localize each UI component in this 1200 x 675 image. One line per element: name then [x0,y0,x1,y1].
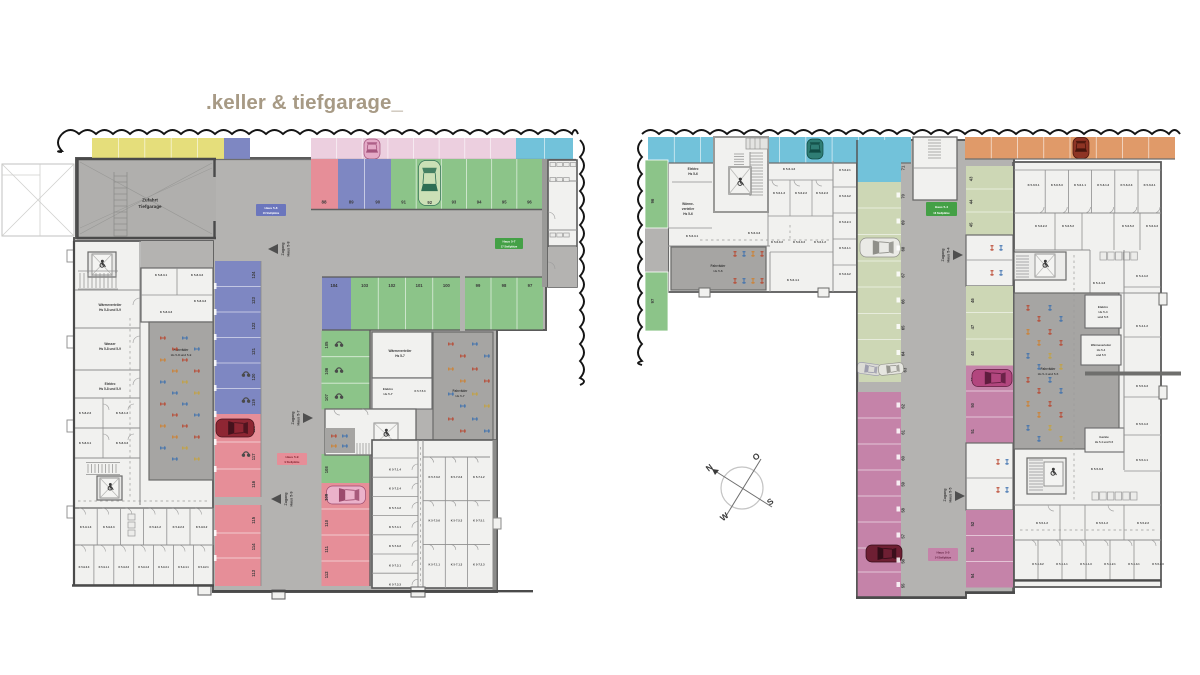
svg-text:Tiefgarage: Tiefgarage [138,204,162,209]
svg-text:K 5-7.2.3: K 5-7.2.3 [473,562,485,566]
svg-text:96: 96 [650,198,655,203]
svg-text:K 5-5.1.2: K 5-5.1.2 [1036,521,1048,525]
svg-text:Haus 5-9: Haus 5-9 [286,455,299,459]
svg-text:58: 58 [901,507,906,512]
svg-text:108: 108 [324,466,329,474]
svg-text:120: 120 [251,373,256,381]
svg-text:K 5-9.0.3: K 5-9.0.3 [79,565,90,569]
svg-text:K 5-6.2.2: K 5-6.2.2 [1035,224,1047,228]
svg-text:Haus 5-5: Haus 5-5 [949,488,953,503]
svg-text:Haus 5-4: Haus 5-4 [935,205,948,209]
svg-text:K 5-7.2.3: K 5-7.2.3 [451,475,463,479]
svg-text:K 5-5.2.2: K 5-5.2.2 [1137,521,1149,525]
svg-text:K 5-9.0.2: K 5-9.0.2 [196,525,208,529]
svg-text:K 5-9.2.2: K 5-9.2.2 [173,525,185,529]
svg-text:117: 117 [251,453,256,460]
svg-text:K 5-6.3.3: K 5-6.3.3 [748,231,761,235]
svg-text:K 5-6.2.1: K 5-6.2.1 [1144,183,1156,187]
svg-text:71: 71 [901,165,906,170]
svg-text:K 5-7.3.2: K 5-7.3.2 [389,544,401,548]
svg-text:K 5-8.0.2: K 5-8.0.2 [116,441,129,445]
svg-text:106: 106 [324,367,329,375]
svg-text:104: 104 [331,283,339,288]
svg-text:114: 114 [251,543,256,550]
svg-text:53: 53 [970,547,975,552]
svg-text:K 5-6.1.3: K 5-6.1.3 [1097,183,1109,187]
svg-text:K 5-6.2.2: K 5-6.2.2 [795,191,807,195]
svg-text:K 5-6.1.1: K 5-6.1.1 [839,246,851,250]
svg-text:Geräte: Geräte [1099,435,1109,439]
svg-text:Elektro: Elektro [688,167,699,171]
svg-text:Wärme-: Wärme- [682,202,694,206]
svg-text:K 5-6.5.3: K 5-6.5.3 [1051,183,1063,187]
svg-text:K 5-8.3.1: K 5-8.3.1 [155,273,168,277]
svg-text:91: 91 [401,200,406,205]
svg-text:K 5-7.2.4: K 5-7.2.4 [389,487,401,491]
svg-text:Zugang: Zugang [941,249,945,262]
svg-text:K 5-6.3.2: K 5-6.3.2 [839,272,851,276]
svg-text:K 5-7.3.3: K 5-7.3.3 [389,583,401,587]
svg-text:64: 64 [901,351,906,356]
svg-text:K 5-8.3.3: K 5-8.3.3 [160,310,173,314]
svg-text:K 5-7.4.2: K 5-7.4.2 [389,506,401,510]
svg-text:89: 89 [349,200,354,205]
svg-text:Fahrräder: Fahrräder [453,389,469,393]
svg-text:57: 57 [901,533,906,538]
svg-text:K 5-5.4.1: K 5-5.4.1 [1136,458,1148,462]
svg-text:48: 48 [970,351,975,356]
svg-text:K 5-6.0.2: K 5-6.0.2 [771,240,783,244]
svg-text:K 5-9.4.3: K 5-9.4.3 [138,565,149,569]
svg-text:17 Stellplätze: 17 Stellplätze [501,244,518,248]
svg-text:Haus 5-7: Haus 5-7 [503,240,516,244]
svg-text:96: 96 [527,200,532,205]
svg-text:98: 98 [502,283,507,288]
svg-text:K 5-5.4.3: K 5-5.4.3 [1136,422,1148,426]
svg-text:Hs 5-7: Hs 5-7 [383,392,392,396]
svg-text:112: 112 [324,571,329,578]
svg-text:K 5-6.2.4: K 5-6.2.4 [839,220,851,224]
svg-text:K 5-8.2.2: K 5-8.2.2 [79,411,92,415]
svg-text:50: 50 [970,402,975,407]
svg-text:K 5-6.1.3: K 5-6.1.3 [773,191,785,195]
svg-text:46: 46 [970,298,975,303]
svg-text:K 5-4.4.2: K 5-4.4.2 [1136,274,1148,278]
svg-text:verteiler: verteiler [682,207,695,211]
svg-text:54: 54 [970,573,975,578]
svg-text:K 5-6.1.2: K 5-6.1.2 [814,240,826,244]
svg-text:Haus 5-8: Haus 5-8 [265,206,278,210]
svg-text:119: 119 [251,399,256,406]
svg-text:14 Stellplätze: 14 Stellplätze [935,556,952,560]
svg-text:K 5-6.2.3: K 5-6.2.3 [1120,183,1132,187]
svg-text:K 5-4.1.2: K 5-4.1.2 [1136,324,1148,328]
svg-text:122: 122 [251,322,256,330]
svg-text:44: 44 [969,199,974,204]
svg-text:113: 113 [251,569,256,576]
svg-text:Zugang: Zugang [943,489,947,502]
svg-text:K 5-9.2.3: K 5-9.2.3 [103,525,115,529]
svg-text:K 5-9.3.1: K 5-9.3.1 [158,565,169,569]
svg-text:61: 61 [901,429,906,434]
svg-text:99: 99 [476,283,481,288]
svg-text:K 5-6.5.2: K 5-6.5.2 [1062,224,1074,228]
svg-text:102: 102 [388,283,396,288]
svg-text:und 5-5: und 5-5 [1096,353,1106,357]
svg-text:90: 90 [375,200,380,205]
svg-text:100: 100 [443,283,451,288]
svg-text:124: 124 [251,271,256,279]
svg-text:Fahrräder: Fahrräder [1041,367,1057,371]
svg-text:Hs 5-8 und 5-9: Hs 5-8 und 5-9 [99,347,121,351]
svg-text:K 5-5.0.3: K 5-5.0.3 [1091,467,1104,471]
svg-text:43: 43 [969,176,974,181]
svg-text:K 5-8.1.2: K 5-8.1.2 [116,411,129,415]
svg-text:88: 88 [321,200,327,205]
svg-text:16 Stellplätze: 16 Stellplätze [263,211,280,215]
svg-text:K 5-8.3.2: K 5-8.3.2 [191,273,204,277]
svg-text:69: 69 [901,220,906,225]
svg-text:9 Stellplätze: 9 Stellplätze [285,460,301,464]
svg-text:K 5-7.1.2: K 5-7.1.2 [473,475,485,479]
svg-text:105: 105 [324,341,329,349]
svg-text:51: 51 [970,428,975,433]
svg-text:16 Stellplätze: 16 Stellplätze [933,211,950,215]
svg-text:K 5-6.4.2: K 5-6.4.2 [783,167,796,171]
svg-text:68: 68 [901,246,906,251]
svg-text:52: 52 [970,521,975,526]
svg-text:97: 97 [528,283,533,288]
svg-text:Fahrräder: Fahrräder [711,264,727,268]
svg-text:103: 103 [361,283,369,288]
svg-text:K 5-8.3.3: K 5-8.3.3 [194,299,207,303]
svg-text:Haus 5-4: Haus 5-4 [947,248,951,263]
svg-text:Zugang: Zugang [281,243,285,256]
svg-text:Haus 5-9: Haus 5-9 [290,492,294,507]
svg-text:K 5-7.1.4: K 5-7.1.4 [389,467,401,471]
svg-text:115: 115 [251,516,256,523]
svg-text:Haus 5-7: Haus 5-7 [297,411,301,426]
svg-text:Hs 5-4 und 5-5: Hs 5-4 und 5-5 [1095,440,1114,444]
svg-text:K 5-6.3.1: K 5-6.3.1 [686,234,699,238]
svg-text:Hs 5-6: Hs 5-6 [688,172,698,176]
svg-text:K 5-9.3.2: K 5-9.3.2 [118,565,129,569]
svg-text:K 5-9.1.1: K 5-9.1.1 [99,565,110,569]
svg-text:95: 95 [502,200,507,205]
svg-text:Hs 5-4 und 5-5: Hs 5-4 und 5-5 [1038,372,1059,376]
svg-text:Hs 5-6: Hs 5-6 [683,212,693,216]
svg-text:K 5-6.3.3: K 5-6.3.3 [1146,224,1158,228]
svg-text:59: 59 [901,481,906,486]
svg-text:Wärmeverteiler: Wärmeverteiler [1091,343,1112,347]
svg-text:K 5-5.1.2: K 5-5.1.2 [1096,521,1108,525]
svg-text:Hs 5-4: Hs 5-4 [1098,310,1107,314]
svg-text:K 5-7.5.1: K 5-7.5.1 [473,519,485,523]
svg-text:K 5-7.5.3: K 5-7.5.3 [451,519,463,523]
svg-text:111: 111 [324,545,329,552]
svg-text:K 5-6.3.2: K 5-6.3.2 [839,194,851,198]
svg-text:110: 110 [324,519,329,526]
svg-text:Hs 5-8 und 5-9: Hs 5-8 und 5-9 [99,387,121,391]
svg-text:Zufahrt: Zufahrt [142,198,158,203]
svg-text:Hs 5-8 und 5-9: Hs 5-8 und 5-9 [171,353,192,357]
svg-text:94: 94 [477,200,482,205]
svg-text:K 5-6.2.1: K 5-6.2.1 [839,168,851,172]
svg-text:K 5-6.5.2: K 5-6.5.2 [1122,224,1134,228]
svg-text:Wärmeverteiler: Wärmeverteiler [388,349,412,353]
svg-text:K 5-7.5.6: K 5-7.5.6 [428,519,440,523]
svg-text:62: 62 [901,403,906,408]
svg-text:Haus 5-8: Haus 5-8 [287,242,291,257]
svg-text:93: 93 [452,200,457,205]
svg-text:.keller & tiefgarage_: .keller & tiefgarage_ [206,91,403,114]
svg-text:K 5-7.1.1: K 5-7.1.1 [428,562,440,566]
svg-text:K 5-7.4.1: K 5-7.4.1 [389,525,401,529]
svg-text:und 5-5: und 5-5 [1098,315,1109,319]
svg-text:92: 92 [427,200,432,205]
svg-text:Zugang: Zugang [284,493,288,506]
svg-text:55: 55 [901,583,906,588]
svg-text:K 5-9.4.1: K 5-9.4.1 [178,565,189,569]
svg-text:K 5-5.2.3: K 5-5.2.3 [1152,562,1164,566]
svg-text:66: 66 [901,299,906,304]
svg-text:109: 109 [324,493,329,501]
svg-text:65: 65 [901,325,906,330]
svg-text:Hs 5-6: Hs 5-6 [713,269,722,273]
svg-text:101: 101 [416,283,424,288]
svg-text:K 5-7.3.2: K 5-7.3.2 [428,475,440,479]
svg-text:Zugang: Zugang [291,412,295,425]
svg-text:K 5-6.1.1: K 5-6.1.1 [1074,183,1086,187]
svg-text:45: 45 [969,222,974,227]
svg-text:Wärmeverteiler: Wärmeverteiler [98,303,122,307]
svg-text:K 5-7.3.1: K 5-7.3.1 [389,563,401,567]
svg-text:123: 123 [251,296,256,304]
svg-text:Hs 5-7: Hs 5-7 [395,354,405,358]
svg-text:Hs 5-8 und 5-9: Hs 5-8 und 5-9 [99,308,121,312]
svg-text:70: 70 [901,193,906,198]
svg-text:Elektro: Elektro [105,382,116,386]
svg-text:K 5-5.3.3: K 5-5.3.3 [1136,384,1148,388]
svg-text:Hs 5-4: Hs 5-4 [1097,348,1106,352]
svg-text:60: 60 [901,455,906,460]
svg-text:67: 67 [901,272,906,277]
svg-text:K 5-4.4.3: K 5-4.4.3 [1093,281,1106,285]
svg-text:K 5-6.5.1: K 5-6.5.1 [1028,183,1040,187]
svg-text:K 5-6.0.3: K 5-6.0.3 [793,240,805,244]
svg-text:Elektro: Elektro [383,387,393,391]
svg-text:Hs 5-7: Hs 5-7 [455,394,464,398]
svg-text:Elektro: Elektro [1098,305,1108,309]
svg-text:K 5-8.0.1: K 5-8.0.1 [79,441,92,445]
svg-text:K 5-6.4.1: K 5-6.4.1 [787,278,800,282]
svg-text:K 5-9.1.2: K 5-9.1.2 [149,525,161,529]
svg-text:Haus 5-5: Haus 5-5 [937,551,950,555]
svg-text:K 5-9.2.1: K 5-9.2.1 [198,565,209,569]
svg-text:107: 107 [324,393,329,401]
svg-text:97: 97 [650,298,655,303]
svg-text:K 5-6.2.3: K 5-6.2.3 [816,191,828,195]
svg-text:116: 116 [251,480,256,487]
svg-text:K 5-7.1.3: K 5-7.1.3 [451,562,463,566]
svg-text:K 5-7.5.3: K 5-7.5.3 [414,389,426,393]
svg-text:121: 121 [251,347,256,355]
svg-text:K 5-9.1.3: K 5-9.1.3 [80,525,92,529]
svg-text:47: 47 [970,324,975,329]
svg-text:Wasser: Wasser [104,342,116,346]
